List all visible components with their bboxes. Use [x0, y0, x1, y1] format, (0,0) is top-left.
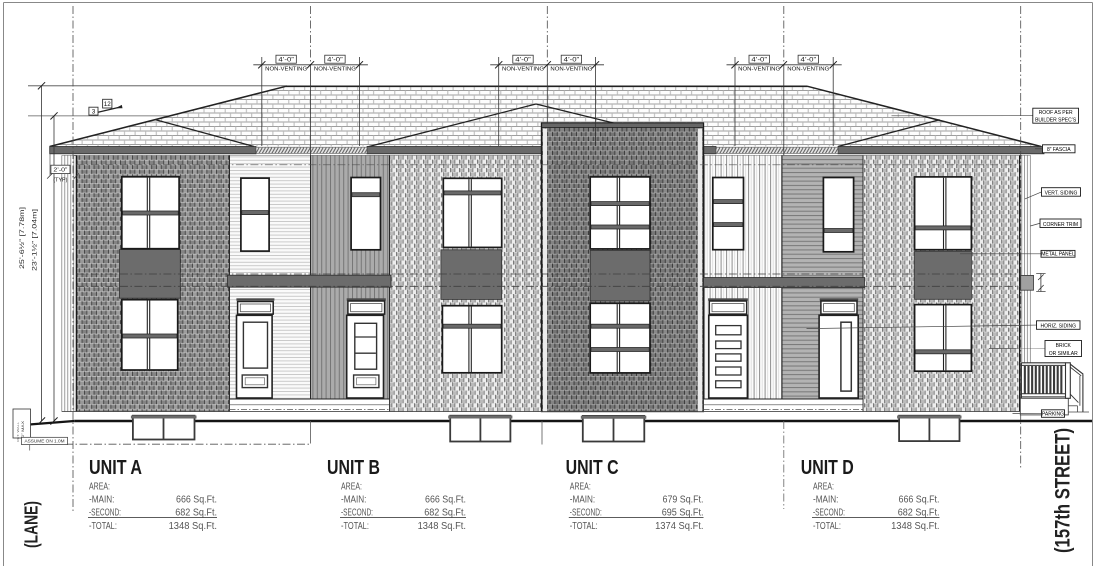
svg-text:666 Sq.Ft.: 666 Sq.Ft.: [425, 495, 466, 506]
svg-text:PARKING: PARKING: [1042, 412, 1064, 418]
svg-text:NON-VENTING: NON-VENTING: [314, 67, 356, 73]
svg-text:-TOTAL:: -TOTAL:: [570, 521, 598, 532]
svg-text:666 Sq.Ft.: 666 Sq.Ft.: [899, 495, 940, 506]
svg-text:23’-1½” [7.04m]: 23’-1½” [7.04m]: [31, 209, 39, 271]
svg-text:METAL PANEL: METAL PANEL: [1041, 252, 1075, 258]
svg-text:OR SIMILAR: OR SIMILAR: [1049, 351, 1078, 357]
svg-text:2’-0”: 2’-0”: [53, 168, 67, 174]
svg-text:695 Sq.Ft.: 695 Sq.Ft.: [662, 508, 704, 519]
svg-text:CORNER TRIM: CORNER TRIM: [1043, 222, 1078, 228]
svg-text:682 Sq.Ft.: 682 Sq.Ft.: [424, 508, 466, 519]
svg-text:ASSUME ON 1.0M: ASSUME ON 1.0M: [25, 438, 66, 443]
svg-text:NON-VENTING: NON-VENTING: [265, 67, 307, 73]
svg-text:12: 12: [104, 101, 112, 108]
svg-text:4’-0”: 4’-0”: [327, 58, 343, 64]
svg-text:8” FASCIA: 8” FASCIA: [1047, 147, 1071, 153]
svg-text:-MAIN:: -MAIN:: [341, 495, 366, 506]
svg-text:1348 Sq.Ft.: 1348 Sq.Ft.: [891, 521, 939, 532]
svg-text:-MAIN:: -MAIN:: [813, 495, 838, 506]
svg-text:682 Sq.Ft.: 682 Sq.Ft.: [175, 508, 217, 519]
svg-text:AREA:: AREA:: [341, 481, 362, 492]
svg-text:4’-0”: 4’-0”: [751, 58, 767, 64]
svg-text:1374 Sq.Ft.: 1374 Sq.Ft.: [655, 521, 703, 532]
svg-text:AREA:: AREA:: [570, 481, 591, 492]
svg-text:4’-0”: 4’-0”: [515, 58, 531, 64]
svg-text:(TYP): (TYP): [53, 177, 67, 183]
svg-text:25’-6½” [7.78m]: 25’-6½” [7.78m]: [18, 207, 26, 269]
svg-text:4’-0”: 4’-0”: [278, 58, 294, 64]
svg-text:-TOTAL:: -TOTAL:: [89, 521, 117, 532]
svg-text:NON-VENTING: NON-VENTING: [787, 67, 829, 73]
svg-text:UNIT A: UNIT A: [89, 457, 142, 479]
svg-text:4’-0”: 4’-0”: [801, 58, 817, 64]
svg-text:HORIZ. SIDING: HORIZ. SIDING: [1040, 324, 1076, 330]
svg-text:-MAIN:: -MAIN:: [89, 495, 114, 506]
svg-text:BUILDER SPEC’S: BUILDER SPEC’S: [1035, 118, 1077, 124]
svg-text:NON-VENTING: NON-VENTING: [502, 67, 544, 73]
svg-text:AREA:: AREA:: [89, 481, 110, 492]
svg-text:-TOTAL:: -TOTAL:: [341, 521, 369, 532]
svg-text:(LANE): (LANE): [22, 501, 42, 548]
svg-text:1348 Sq.Ft.: 1348 Sq.Ft.: [418, 521, 466, 532]
svg-text:VERT. SIDING: VERT. SIDING: [1045, 191, 1078, 197]
svg-text:-SECOND:: -SECOND:: [813, 508, 845, 519]
svg-text:-SECOND:: -SECOND:: [89, 508, 121, 519]
svg-text:NON-VENTING: NON-VENTING: [550, 67, 592, 73]
svg-text:4’-0”: 4’-0”: [564, 58, 580, 64]
svg-text:ROOF AS PER: ROOF AS PER: [1039, 110, 1073, 116]
svg-text:666 Sq.Ft.: 666 Sq.Ft.: [176, 495, 217, 506]
svg-text:-SECOND:: -SECOND:: [341, 508, 373, 519]
svg-text:UNIT C: UNIT C: [566, 457, 619, 479]
svg-text:UNIT B: UNIT B: [327, 457, 380, 479]
svg-text:-MAIN:: -MAIN:: [570, 495, 595, 506]
svg-text:BRICK: BRICK: [1056, 343, 1072, 349]
svg-text:1348 Sq.Ft.: 1348 Sq.Ft.: [169, 521, 217, 532]
svg-text:NON-VENTING: NON-VENTING: [738, 67, 780, 73]
svg-text:RET. WALL: RET. WALL: [16, 422, 20, 442]
svg-text:682 Sq.Ft.: 682 Sq.Ft.: [898, 508, 940, 519]
svg-text:3: 3: [92, 109, 96, 116]
svg-text:AREA:: AREA:: [813, 481, 834, 492]
svg-text:UNIT D: UNIT D: [801, 457, 854, 479]
svg-text:679 Sq.Ft.: 679 Sq.Ft.: [663, 495, 704, 506]
svg-text:(157th STREET): (157th STREET): [1052, 428, 1075, 553]
svg-text:-SECOND:: -SECOND:: [570, 508, 602, 519]
svg-text:-TOTAL:: -TOTAL:: [813, 521, 841, 532]
